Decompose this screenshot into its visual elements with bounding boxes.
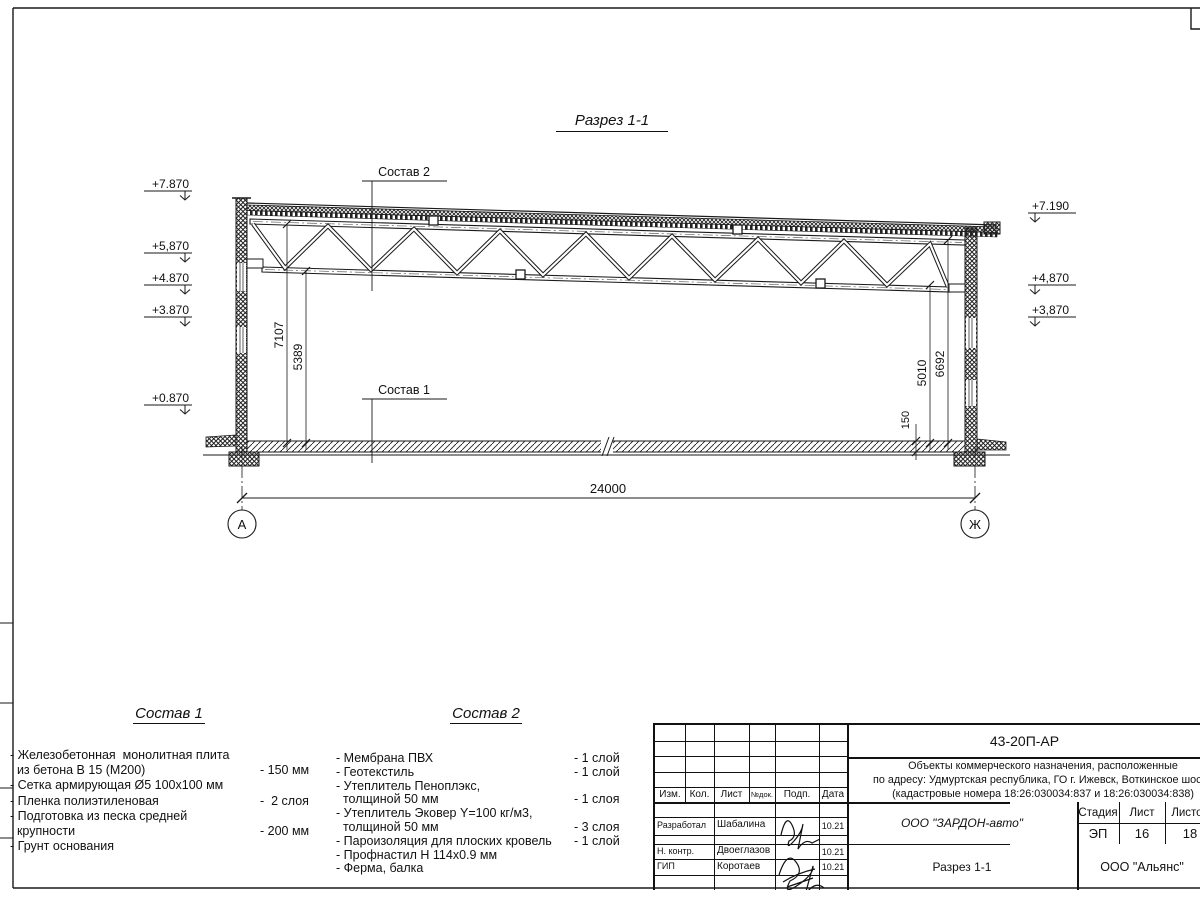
sheets-header: Листов	[1165, 802, 1200, 823]
list-item: - Грунт основания	[10, 839, 328, 854]
list-item: - Железобетонная монолитная плита	[10, 748, 328, 763]
list-item: - Геотекстиль- 1 слой	[336, 766, 636, 780]
signer-role: Разработал	[657, 820, 713, 830]
axis-label-a: А	[238, 517, 247, 532]
dim-5010: 5010	[915, 359, 929, 386]
elevation-mark: +0.870	[144, 391, 192, 414]
list-item: - Утеплитель Пеноплэкс,	[336, 780, 636, 794]
drawing-sheet: { "drawing": { "title": "Разрез 1-1", "l…	[0, 0, 1200, 900]
svg-text:Состав 2: Состав 2	[378, 165, 430, 179]
left-apron	[206, 435, 236, 447]
dim-6692: 6692	[933, 350, 947, 377]
elevation-mark: +3.870	[144, 303, 192, 326]
signer-role: ГИП	[657, 861, 713, 871]
signer-name: Шабалина	[717, 819, 775, 830]
elevation-marks-right: +7.190 +4,870 +3,870	[1028, 199, 1076, 326]
elevation-mark: +4.870	[144, 271, 192, 294]
svg-text:+7.190: +7.190	[1032, 199, 1069, 213]
list-item: толщиной 50 мм- 3 слоя	[336, 821, 636, 835]
truss-bottom-chord	[262, 267, 950, 292]
floor-and-foundations	[203, 435, 1010, 466]
axis-label-zh: Ж	[969, 517, 981, 532]
composition-2-list: Состав 2 - Мембрана ПВХ- 1 слой - Геотек…	[336, 706, 636, 876]
col-header-kol: Кол.	[685, 787, 714, 802]
signature	[779, 858, 824, 890]
stage-header: Стадия	[1077, 802, 1119, 823]
truss-plate	[516, 270, 525, 279]
dim-150: 150	[900, 411, 912, 429]
svg-text:+4,870: +4,870	[1032, 271, 1069, 285]
vertical-dimensions: 7107 5389 5010 6692 150	[272, 220, 952, 460]
sheets-value: 18	[1165, 823, 1200, 844]
col-header-podp: Подп.	[775, 787, 819, 802]
dim-5389: 5389	[291, 343, 305, 370]
elevation-mark: +4,870	[1028, 271, 1076, 294]
elevation-mark: +5,870	[144, 239, 192, 262]
list-item: - Профнастил Н 114х0.9 мм	[336, 849, 636, 863]
stage-value: ЭП	[1077, 823, 1119, 844]
list-item: - Подготовка из песка средней	[10, 809, 328, 824]
elevation-marks-left: +7.870 +5,870 +4.870 +3.870 +0.870	[144, 177, 192, 414]
svg-text:+5,870: +5,870	[152, 239, 189, 253]
span-dimension: 24000 А Ж	[228, 446, 989, 538]
truss-plate	[816, 279, 825, 288]
elevation-mark: +3,870	[1028, 303, 1076, 326]
project-description: Объекты коммерческого назначения, распол…	[847, 759, 1200, 802]
col-header-data: Дата	[819, 787, 847, 802]
signature	[781, 821, 820, 849]
list-item: - Утеплитель Эковер Y=100 кг/м3,	[336, 807, 636, 821]
signer-name: Двоеглазов	[717, 845, 775, 856]
composition-2-heading: Состав 2	[336, 706, 636, 726]
svg-text:+3,870: +3,870	[1032, 303, 1069, 317]
list-item: из бетона В 15 (М200)- 150 мм	[10, 763, 328, 778]
drawing-title-cell: Разрез 1-1	[847, 844, 1077, 890]
list-item: - Ферма, балка	[336, 862, 636, 876]
list-item: крупности- 200 мм	[10, 824, 328, 839]
signer-name: Коротаев	[717, 861, 775, 872]
list-item: - Сетка армирующая Ø5 100х100 мм	[10, 778, 328, 793]
roof-insulation-strip	[247, 205, 997, 233]
roof-end-cap	[984, 222, 1000, 234]
company-name: ООО "Альянс"	[1077, 844, 1200, 890]
walls	[232, 198, 977, 452]
title-block: Изм. Кол. Лист №док. Подп. Дата Разработ…	[653, 723, 1200, 890]
composition-1-heading: Состав 1	[10, 706, 328, 726]
col-header-list: Лист	[714, 787, 749, 802]
dim-7107: 7107	[272, 321, 286, 348]
left-wall	[236, 198, 247, 452]
svg-text:+3.870: +3.870	[152, 303, 189, 317]
elevation-mark: +7.190	[1028, 199, 1076, 222]
composition-1-list: Состав 1 - Железобетонная монолитная пли…	[10, 706, 328, 854]
svg-text:Состав 1: Состав 1	[378, 383, 430, 397]
org-name: ООО "ЗАРДОН-авто"	[847, 802, 1077, 844]
truss-plate	[733, 225, 742, 234]
section-title: Разрез 1-1	[556, 112, 668, 132]
elevation-mark: +7.870	[144, 177, 192, 200]
svg-text:+4.870: +4.870	[152, 271, 189, 285]
right-foundation	[954, 452, 985, 466]
sheet-value: 16	[1119, 823, 1165, 844]
col-header-ndok: №док.	[749, 787, 775, 802]
signer-role: Н. контр.	[657, 846, 713, 856]
truss-plate	[429, 216, 438, 225]
svg-text:+7.870: +7.870	[152, 177, 189, 191]
svg-text:+0.870: +0.870	[152, 391, 189, 405]
signatures	[773, 807, 833, 890]
truss-support-left	[247, 259, 263, 268]
span-dim-label: 24000	[590, 481, 626, 496]
col-header-izm: Изм.	[655, 787, 685, 802]
list-item: - Мембрана ПВХ- 1 слой	[336, 752, 636, 766]
left-foundation	[229, 452, 259, 466]
list-item: толщиной 50 мм- 1 слоя	[336, 793, 636, 807]
list-item: - Пленка полиэтиленовая- 2 слоя	[10, 794, 328, 809]
doc-code: 43-20П-АР	[847, 725, 1200, 757]
list-item: - Пароизоляция для плоских кровель- 1 сл…	[336, 835, 636, 849]
sheet-header: Лист	[1119, 802, 1165, 823]
right-apron	[977, 439, 1006, 450]
truss-support-right	[949, 284, 965, 292]
